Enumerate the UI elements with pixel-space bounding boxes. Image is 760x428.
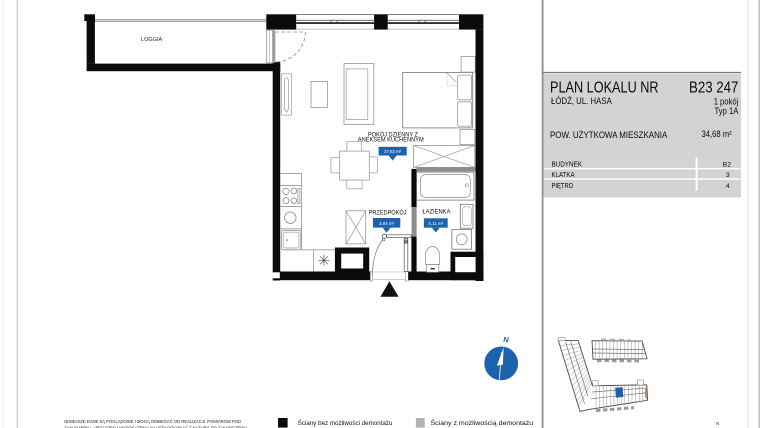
svg-text:Ściany z możliwością demontażu: Ściany z możliwością demontażu [431, 418, 534, 427]
svg-text:POW. UŻYTKOWA MIESZKANIA: POW. UŻYTKOWA MIESZKANIA [550, 130, 668, 140]
svg-text:PRZEDPOKÓJ: PRZEDPOKÓJ [369, 210, 407, 217]
svg-text:ZAKUP MEBLI, URZĄDZEŃ I WYPOSA: ZAKUP MEBLI, URZĄDZEŃ I WYPOSAŻENIA NALE… [64, 425, 248, 428]
svg-text:N: N [716, 421, 719, 426]
svg-text:3: 3 [726, 172, 730, 179]
svg-text:4,11 m²: 4,11 m² [428, 221, 443, 227]
svg-text:ŁAZIENKA: ŁAZIENKA [422, 208, 451, 215]
svg-text:PLAN LOKALU NR: PLAN LOKALU NR [550, 80, 659, 97]
svg-text:4: 4 [726, 183, 730, 190]
svg-text:Ściany bez możliwości demontaż: Ściany bez możliwości demontażu [298, 418, 393, 427]
svg-text:27,63 m²: 27,63 m² [384, 149, 401, 155]
svg-text:LOGGIA: LOGGIA [141, 37, 162, 43]
svg-text:2,94 m²: 2,94 m² [379, 221, 394, 227]
svg-text:ŁÓDŹ, UL. HASA: ŁÓDŹ, UL. HASA [551, 96, 612, 106]
svg-text:B2: B2 [723, 162, 732, 169]
svg-text:B23 247: B23 247 [689, 80, 738, 97]
svg-text:34,68 m²: 34,68 m² [702, 129, 732, 139]
svg-text:ANEKSEM KUCHENNYM: ANEKSEM KUCHENNYM [358, 137, 424, 144]
svg-text:KLATKA: KLATKA [552, 172, 575, 179]
svg-text:NINIEJSZE DANE SĄ POGLĄDOWE I: NINIEJSZE DANE SĄ POGLĄDOWE I MOGĄ ODBIE… [64, 418, 241, 424]
svg-text:PIĘTRO: PIĘTRO [552, 183, 574, 190]
svg-text:BUDYNEK: BUDYNEK [552, 162, 583, 169]
svg-text:Typ 1A: Typ 1A [715, 106, 739, 116]
svg-text:N: N [503, 335, 509, 344]
